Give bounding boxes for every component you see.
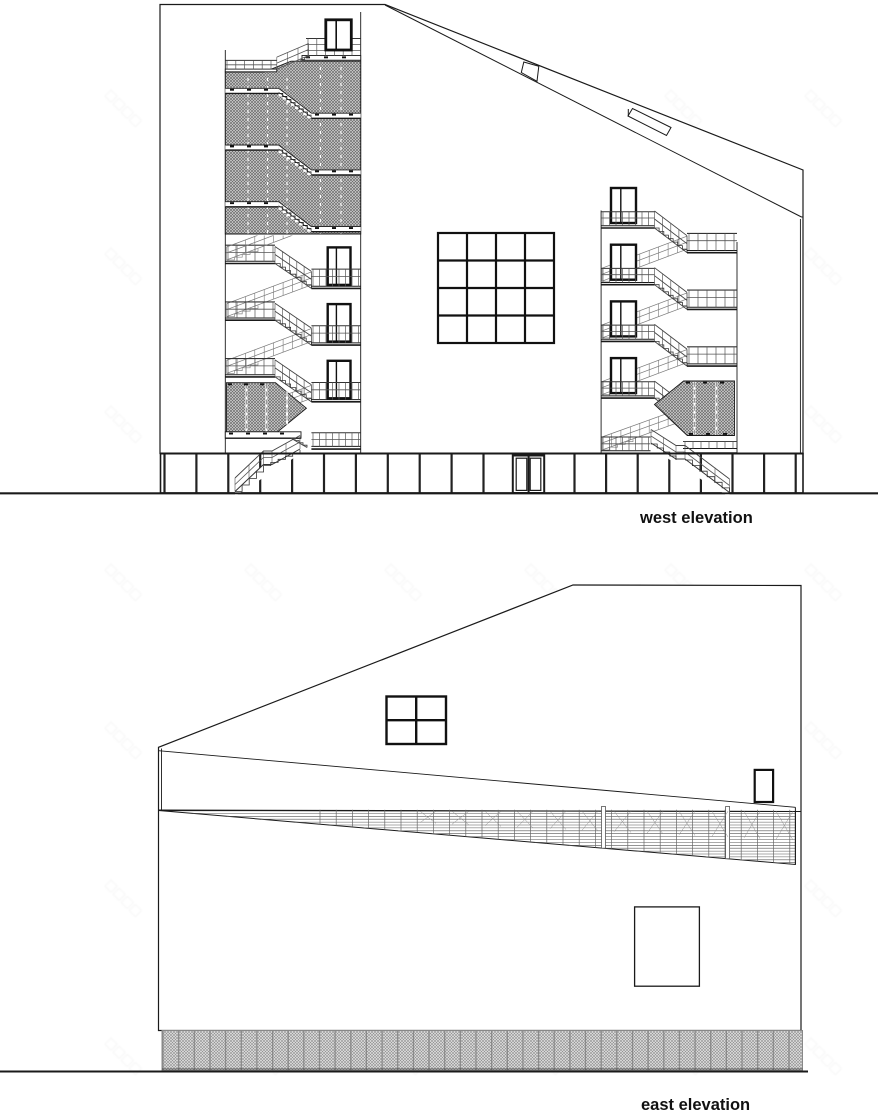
svg-text:east elevation: east elevation: [641, 1096, 750, 1112]
svg-text:west elevation: west elevation: [639, 509, 753, 527]
